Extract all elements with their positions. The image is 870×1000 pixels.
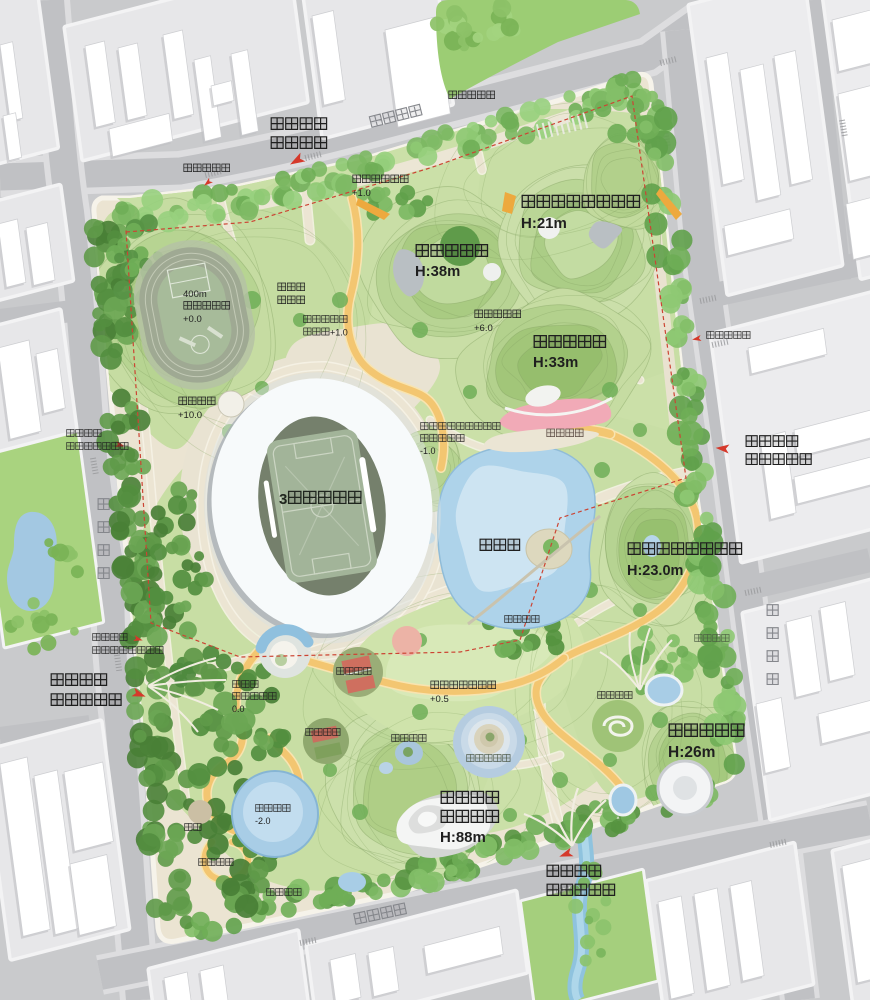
svg-text:H:33m: H:33m: [533, 355, 578, 371]
svg-text:H:23.0m: H:23.0m: [627, 563, 683, 579]
svg-text:+6.0: +6.0: [474, 323, 493, 334]
svg-text:H:88m: H:88m: [440, 829, 486, 846]
svg-text:+10.0: +10.0: [178, 410, 202, 421]
svg-text:-2.0: -2.0: [255, 816, 271, 826]
svg-text:-1.0: -1.0: [420, 446, 436, 456]
svg-text:+0.5: +0.5: [430, 694, 449, 705]
svg-text:+1.0: +1.0: [330, 328, 348, 338]
svg-text:+0.0: +0.0: [183, 314, 202, 325]
svg-text:H:26m: H:26m: [668, 744, 715, 761]
svg-text:+1.0: +1.0: [352, 188, 371, 199]
svg-text:400m: 400m: [183, 289, 207, 300]
svg-text:H:21m: H:21m: [521, 215, 567, 232]
svg-text:3: 3: [279, 491, 287, 508]
svg-text:0.0: 0.0: [232, 704, 245, 714]
svg-text:H:38m: H:38m: [415, 264, 460, 280]
